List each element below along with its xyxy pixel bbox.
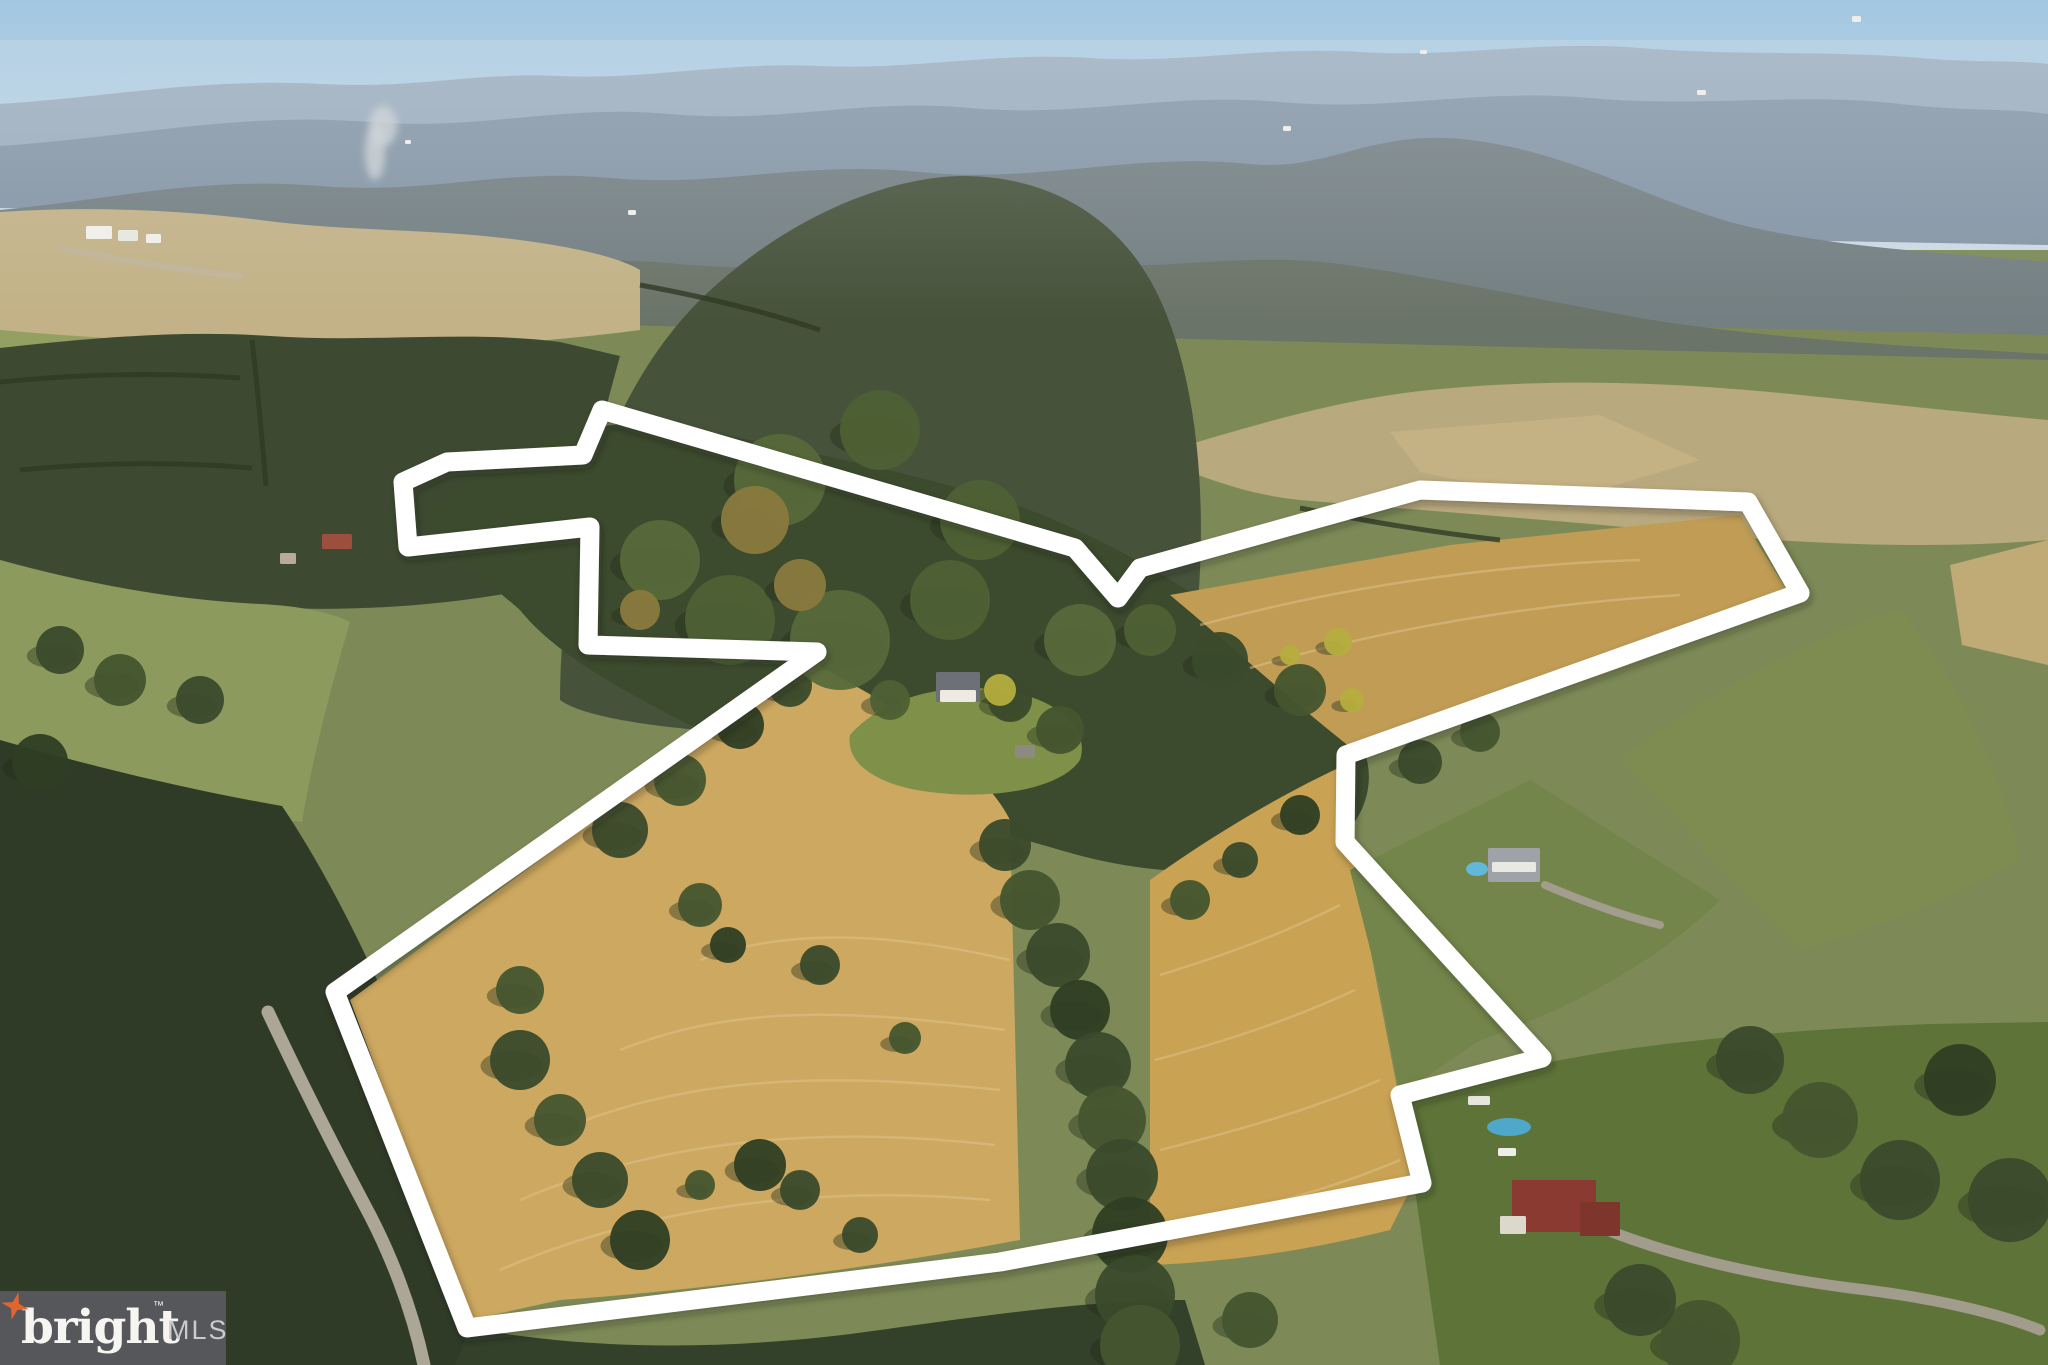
farm-building bbox=[86, 226, 112, 239]
tree-canopy bbox=[610, 1210, 670, 1270]
aerial-scene bbox=[0, 0, 2048, 1365]
tree-canopy bbox=[490, 1030, 550, 1090]
tree-canopy bbox=[1170, 880, 1210, 920]
neighbor-house-roofline bbox=[1492, 862, 1536, 872]
tree-canopy bbox=[620, 520, 700, 600]
tree-canopy bbox=[36, 626, 84, 674]
estate-pool bbox=[1487, 1118, 1531, 1136]
farmhouse-front bbox=[940, 690, 976, 702]
tree-canopy bbox=[1050, 980, 1110, 1040]
tree-canopy bbox=[1124, 604, 1176, 656]
farm-building bbox=[118, 230, 138, 241]
estate-trailer bbox=[1498, 1148, 1516, 1156]
tree-canopy bbox=[1192, 632, 1248, 688]
farm-building bbox=[146, 234, 161, 243]
tree-canopy bbox=[710, 927, 746, 963]
estate-porch bbox=[1500, 1216, 1526, 1234]
valley-house bbox=[1697, 90, 1706, 95]
tree-canopy bbox=[1324, 628, 1352, 656]
tree-canopy bbox=[1280, 645, 1300, 665]
red-roof-barn bbox=[322, 534, 352, 549]
tree-canopy bbox=[534, 1094, 586, 1146]
tree-canopy bbox=[620, 590, 660, 630]
haze bbox=[0, 40, 2048, 320]
tree-canopy bbox=[1860, 1140, 1940, 1220]
tree-canopy bbox=[1340, 688, 1364, 712]
tree-canopy bbox=[1280, 795, 1320, 835]
smoke bbox=[369, 106, 397, 146]
tree-canopy bbox=[1026, 923, 1090, 987]
valley-house bbox=[1852, 16, 1861, 22]
estate-trailer bbox=[1468, 1096, 1490, 1105]
tree-canopy bbox=[870, 680, 910, 720]
tree-canopy bbox=[1222, 842, 1258, 878]
tree-canopy bbox=[842, 1217, 878, 1253]
tree-canopy bbox=[910, 560, 990, 640]
valley-house bbox=[628, 210, 636, 215]
valley-house bbox=[1283, 126, 1291, 131]
tree-canopy bbox=[94, 654, 146, 706]
farm-shed bbox=[1015, 745, 1035, 758]
tree-canopy bbox=[1782, 1082, 1858, 1158]
tree-canopy bbox=[889, 1022, 921, 1054]
tree-canopy bbox=[572, 1152, 628, 1208]
tree-canopy bbox=[1222, 1292, 1278, 1348]
tree-canopy bbox=[685, 1170, 715, 1200]
tree-canopy bbox=[1274, 664, 1326, 716]
tree-canopy bbox=[800, 945, 840, 985]
tree-canopy bbox=[979, 819, 1031, 871]
tree-canopy bbox=[774, 559, 826, 611]
tree-canopy bbox=[496, 966, 544, 1014]
tree-canopy bbox=[678, 883, 722, 927]
valley-house bbox=[405, 140, 411, 144]
estate-house-wing bbox=[1580, 1202, 1620, 1236]
tree-canopy bbox=[734, 1139, 786, 1191]
tree-canopy bbox=[1044, 604, 1116, 676]
tree-canopy bbox=[1604, 1264, 1676, 1336]
tree-canopy bbox=[1398, 740, 1442, 784]
tree-canopy bbox=[1036, 706, 1084, 754]
neighbor-pool bbox=[1466, 862, 1488, 876]
tree-canopy bbox=[1924, 1044, 1996, 1116]
tree-canopy bbox=[840, 390, 920, 470]
tree-canopy bbox=[176, 676, 224, 724]
trademark-symbol: ™ bbox=[153, 1300, 164, 1312]
tree-canopy bbox=[12, 734, 68, 790]
small-house bbox=[280, 553, 296, 564]
valley-house bbox=[1420, 50, 1427, 54]
brightmls-star-icon bbox=[0, 1291, 30, 1321]
tree-canopy bbox=[721, 486, 789, 554]
brightmls-mls-text: MLS bbox=[167, 1315, 229, 1346]
brightmls-watermark: bright ™ MLS bbox=[0, 1291, 226, 1365]
tree-canopy bbox=[984, 674, 1016, 706]
aerial-property-photo: bright ™ MLS bbox=[0, 0, 2048, 1365]
tree-canopy bbox=[1000, 870, 1060, 930]
tree-canopy bbox=[780, 1170, 820, 1210]
tree-canopy bbox=[1716, 1026, 1784, 1094]
